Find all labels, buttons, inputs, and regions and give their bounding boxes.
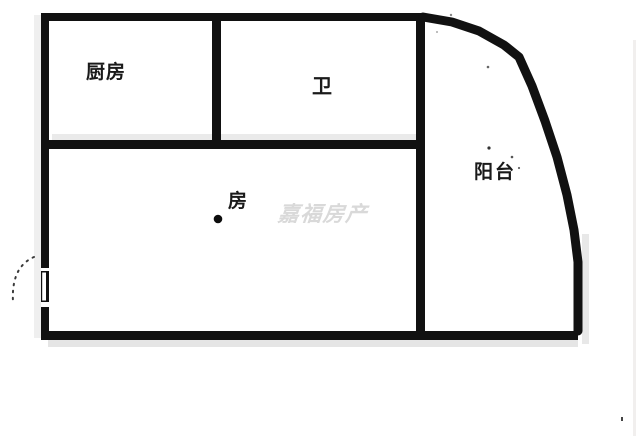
shadow-image-edge	[633, 40, 636, 436]
shadow-left-wall	[34, 15, 41, 338]
room-label-kitchen: 厨房	[86, 63, 126, 82]
speck	[511, 156, 514, 159]
shadow-right-wall	[582, 234, 589, 344]
door-swing-arc	[13, 257, 34, 302]
room-label-bathroom: 卫	[312, 77, 332, 97]
wall-top	[41, 13, 425, 21]
wall-bottom	[41, 331, 578, 340]
speck	[621, 417, 623, 421]
room-label-bedroom: 房	[228, 192, 247, 211]
room-dot-marker	[214, 215, 223, 224]
speck	[450, 14, 452, 16]
speck	[436, 31, 438, 33]
shadow-divider-wall	[52, 134, 418, 140]
floorplan: 厨房 卫 房 阳台 嘉福房产	[0, 0, 640, 436]
wall-divider-kitchen-bathroom	[212, 13, 221, 149]
shadow-bottom-wall	[48, 340, 578, 347]
room-label-balcony: 阳台	[474, 163, 516, 182]
watermark: 嘉福房产	[277, 204, 369, 225]
wall-left-lower	[41, 307, 49, 335]
speck	[518, 167, 520, 169]
wall-divider-horizontal	[41, 140, 425, 149]
wall-divider-balcony	[416, 13, 425, 340]
speck	[487, 66, 490, 69]
door-leaf	[42, 273, 46, 301]
speck	[487, 146, 490, 149]
